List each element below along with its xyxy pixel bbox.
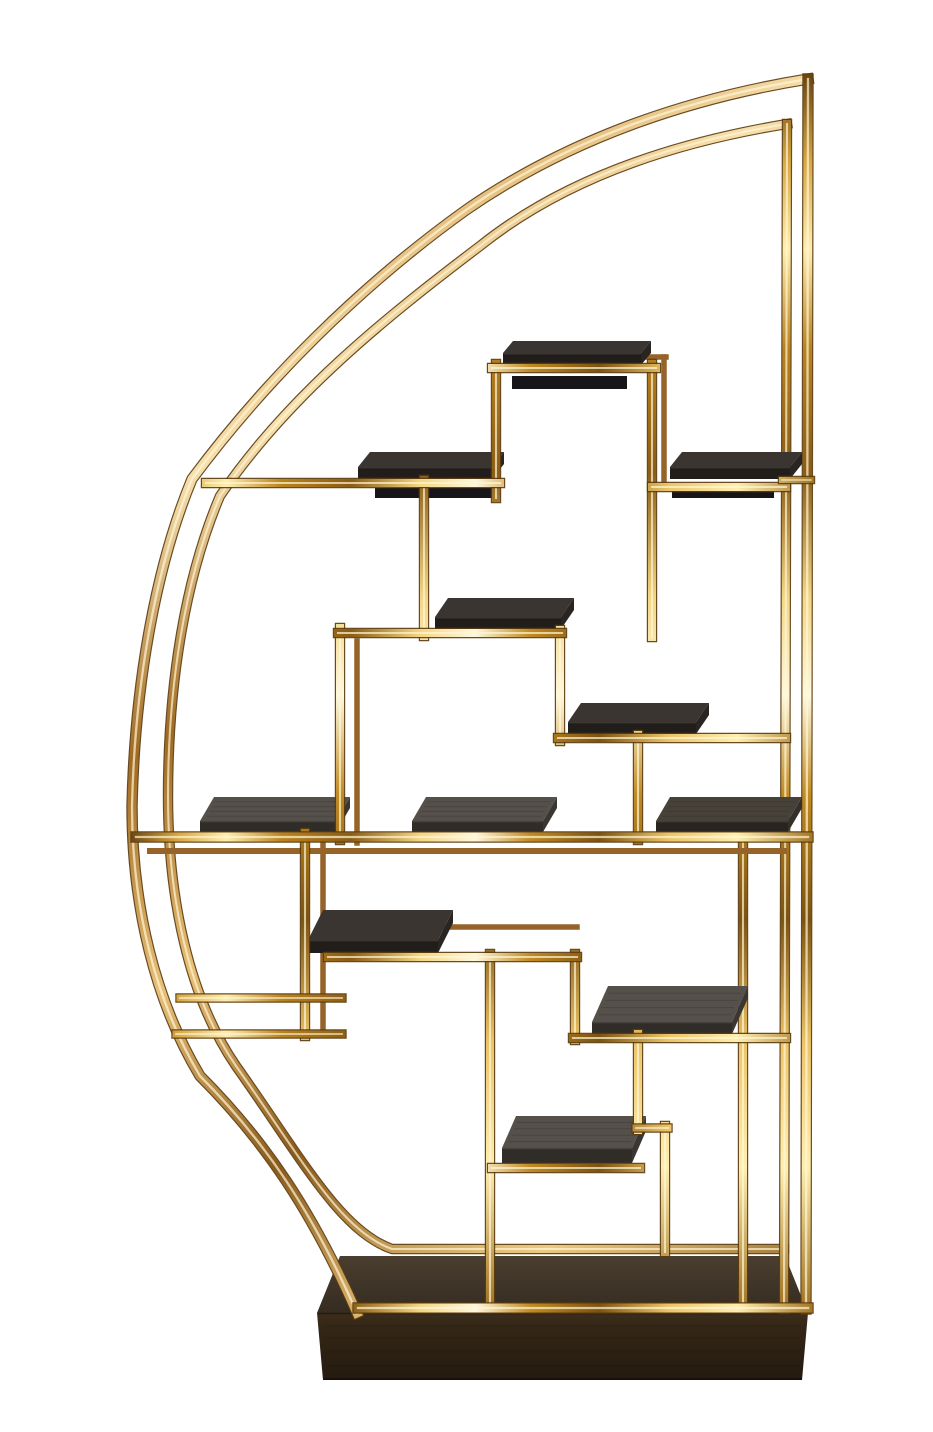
frame-front (136, 364, 811, 1308)
shelf-a (503, 341, 651, 365)
shelf-h (200, 797, 350, 832)
shelf-underside (375, 488, 493, 498)
frame-rear (132, 79, 808, 1313)
outer-arc (132, 79, 808, 1313)
shelf-c (670, 452, 802, 479)
shelf-i (308, 910, 453, 953)
base-plinth (317, 1256, 808, 1380)
shelf-g (656, 797, 802, 832)
right-inner-post (784, 124, 787, 1309)
shelf-k (502, 1116, 646, 1163)
etagere-illustration (40, 16, 933, 1416)
shelf-e (568, 703, 709, 734)
inner-arc (168, 124, 787, 1249)
shelf-j (592, 986, 748, 1034)
product-photo (40, 16, 933, 1416)
shelf-f (412, 797, 557, 832)
shelf-b (358, 452, 504, 479)
shelf-underside (512, 376, 627, 389)
shelf-d (435, 598, 574, 629)
right-outer-post (806, 79, 808, 1309)
